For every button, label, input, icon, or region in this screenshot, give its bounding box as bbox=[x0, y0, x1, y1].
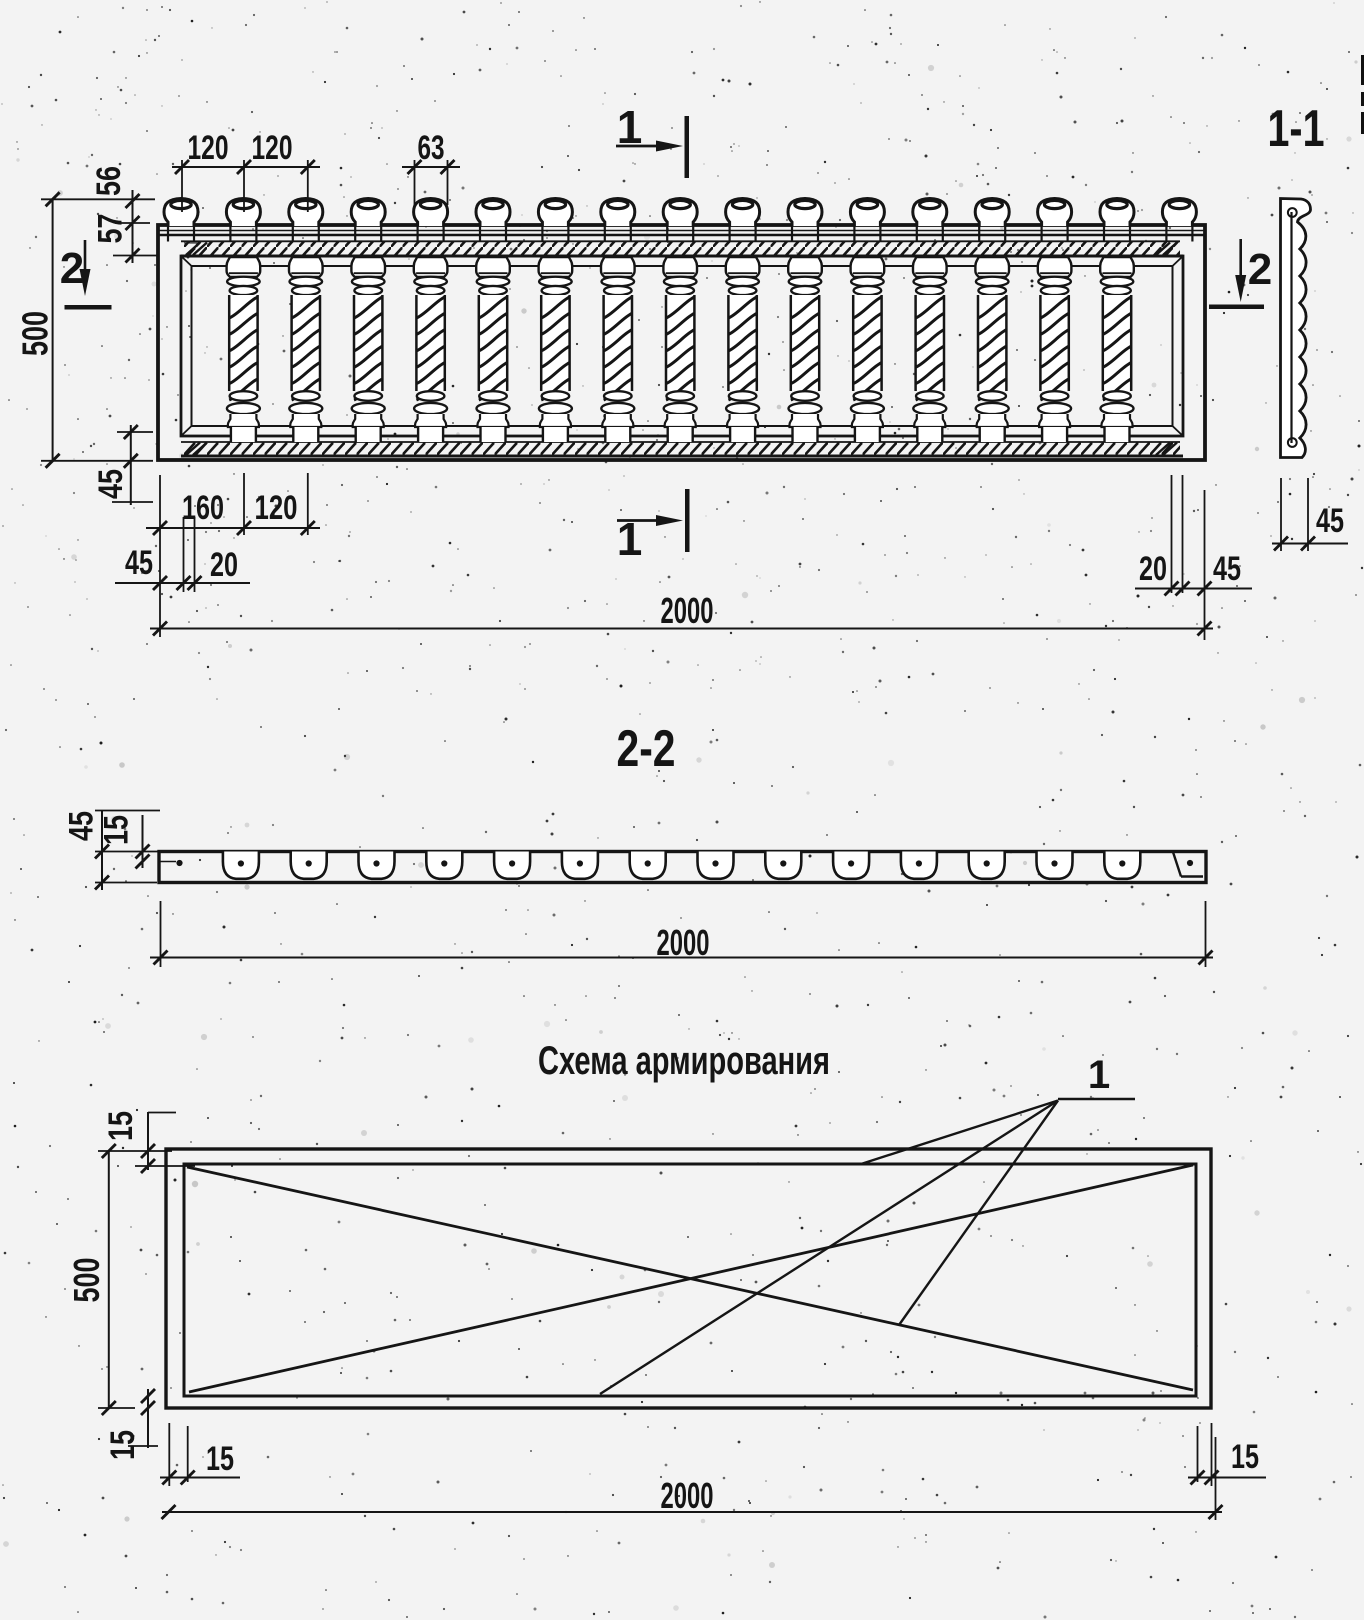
svg-text:120: 120 bbox=[255, 489, 298, 527]
svg-text:57: 57 bbox=[92, 214, 130, 244]
svg-text:1: 1 bbox=[1088, 1053, 1110, 1097]
svg-text:45: 45 bbox=[63, 811, 101, 841]
svg-text:120: 120 bbox=[188, 129, 229, 167]
svg-text:1: 1 bbox=[617, 513, 643, 565]
svg-text:2: 2 bbox=[1248, 245, 1272, 294]
svg-text:2000: 2000 bbox=[661, 1475, 714, 1516]
svg-text:20: 20 bbox=[210, 546, 238, 584]
svg-text:45: 45 bbox=[125, 544, 153, 582]
svg-text:2000: 2000 bbox=[657, 922, 710, 963]
svg-text:15: 15 bbox=[206, 1440, 234, 1478]
svg-text:2000: 2000 bbox=[661, 590, 714, 631]
svg-text:Схема армирования: Схема армирования bbox=[538, 1039, 830, 1083]
svg-text:2-2: 2-2 bbox=[617, 720, 676, 778]
svg-text:15: 15 bbox=[1231, 1438, 1259, 1476]
svg-text:15: 15 bbox=[98, 815, 136, 845]
svg-text:20: 20 bbox=[1139, 550, 1167, 588]
svg-text:2: 2 bbox=[60, 244, 84, 293]
svg-text:15: 15 bbox=[104, 1430, 142, 1460]
svg-text:56: 56 bbox=[90, 166, 128, 196]
svg-text:500: 500 bbox=[66, 1258, 107, 1303]
svg-text:160: 160 bbox=[182, 489, 224, 527]
svg-text:45: 45 bbox=[1316, 502, 1344, 540]
svg-text:120: 120 bbox=[252, 129, 293, 167]
svg-text:500: 500 bbox=[15, 311, 56, 356]
svg-text:1-1: 1-1 bbox=[1268, 100, 1325, 158]
svg-text:45: 45 bbox=[1213, 550, 1241, 588]
svg-text:63: 63 bbox=[418, 129, 445, 167]
svg-text:45: 45 bbox=[92, 469, 130, 499]
svg-text:15: 15 bbox=[102, 1111, 140, 1141]
